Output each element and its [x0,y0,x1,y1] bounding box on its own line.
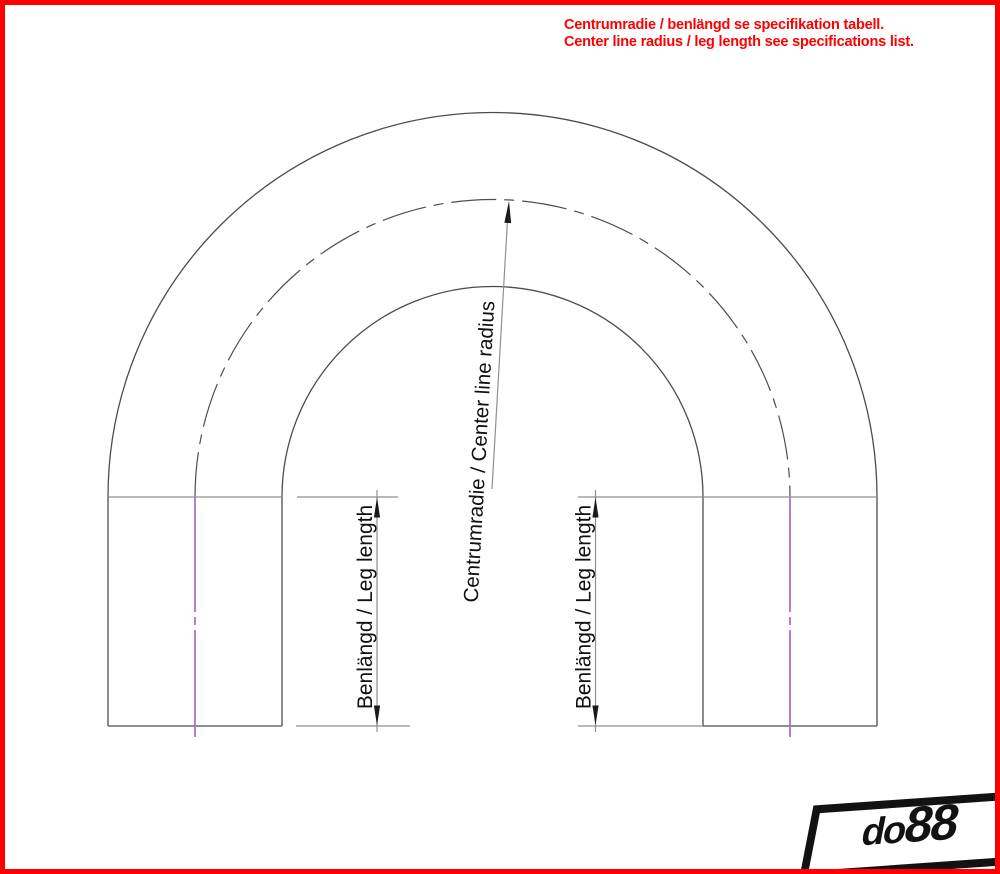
center-line-radius-label: Centrumradie / Center line radius [460,300,500,603]
do88-logo-text: do88 [858,796,962,853]
logo-text-88: 88 [901,796,962,850]
extension-lines [108,206,877,732]
right-leg-length-label: Benlängd / Leg length [573,505,596,709]
bend-drawing: Centrumradie / Center line radius Benlän… [0,0,1000,874]
spec-note-line-sv: Centrumradie / benlängd se specifikation… [564,17,914,34]
leg-centerlines [195,497,790,737]
left-leg-length-label: Benlängd / Leg length [354,505,377,709]
drawing-sheet: Centrumradie / benlängd se specifikation… [0,0,1000,874]
do88-logo: do88 [799,791,1000,874]
radius-arrow-icon [504,201,512,223]
spec-note-line-en: Center line radius / leg length see spec… [564,34,914,51]
spec-note: Centrumradie / benlängd se specifikation… [564,17,914,51]
